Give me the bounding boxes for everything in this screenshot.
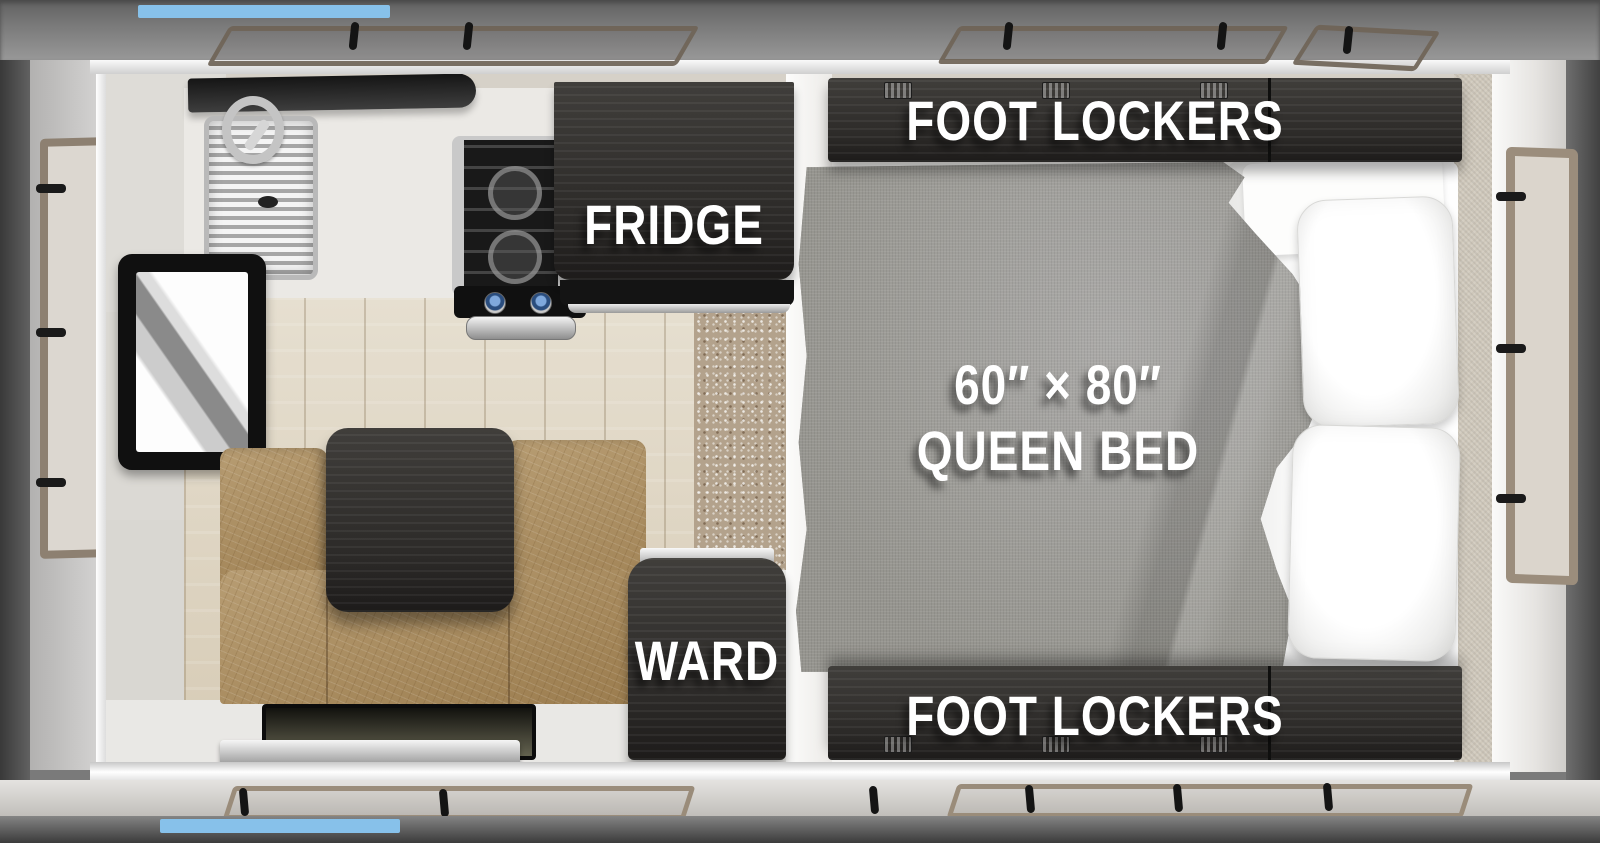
right-window-frame (1506, 147, 1578, 586)
step-carpet (694, 290, 788, 570)
floorplan-canvas: FRIDGE FOOT LOCKERS 60″ × 80″ QUEEN BED … (0, 0, 1600, 843)
fridge-label: FRIDGE (554, 193, 794, 258)
oven-fan (488, 230, 542, 284)
pillow (1287, 424, 1461, 662)
oven-handle (466, 316, 576, 340)
queen-bed-type-label: QUEEN BED (858, 419, 1258, 484)
fridge-drawer (560, 280, 794, 306)
pillow (1296, 195, 1460, 428)
floor-edge (90, 762, 1510, 782)
foot-lockers-top-label: FOOT LOCKERS (828, 89, 1362, 154)
window-latch (1496, 494, 1526, 503)
cooktop-knob (484, 292, 506, 314)
window-latch (36, 328, 66, 337)
window-latch (36, 184, 66, 193)
exterior-window-frame (1291, 25, 1440, 72)
exterior-window-frame (937, 26, 1289, 64)
fridge-drawer-trim (568, 304, 790, 313)
window-latch (1496, 344, 1526, 353)
oven-fan (488, 166, 542, 220)
dinette-table (326, 428, 514, 612)
cooktop-knob (530, 292, 552, 314)
window-latch (36, 478, 66, 487)
foot-lockers-bottom-label: FOOT LOCKERS (828, 684, 1362, 749)
exterior-window-frame (222, 786, 695, 820)
queen-bed-size-label: 60″ × 80″ (858, 353, 1258, 418)
sink-drain (258, 196, 278, 208)
awning-rail-bottom (160, 819, 400, 833)
window-latch (1496, 192, 1526, 201)
awning-rail-top (138, 5, 390, 18)
tv-screen (136, 272, 248, 452)
bedside-carpet-strip (1454, 64, 1492, 770)
exterior-window-frame (206, 26, 699, 66)
exterior-edge-left (0, 0, 30, 843)
wardrobe-label: WARD (628, 629, 786, 694)
